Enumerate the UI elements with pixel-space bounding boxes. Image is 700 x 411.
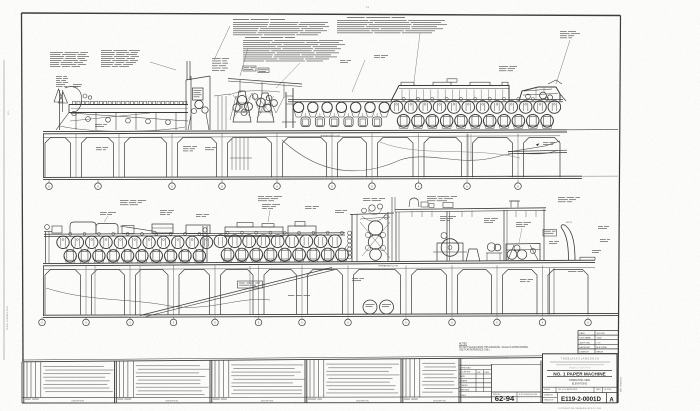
svg-text:APPROVED: APPROVED — [460, 366, 471, 369]
svg-text:NETWORK: NETWORK — [580, 347, 591, 349]
svg-text:DATE: DATE — [580, 332, 586, 335]
svg-text:H A M I L T O N O H I O: H A M I L T O N O H I O — [569, 367, 591, 370]
svg-text:T-605: T-605 — [597, 338, 603, 340]
svg-text:DRAWN BY: DRAWN BY — [544, 393, 554, 396]
svg-text:WIRE: WIRE — [73, 87, 79, 89]
svg-text:10-12-66: 10-12-66 — [604, 389, 611, 391]
svg-text:DESCRIPTION: DESCRIPTION — [72, 400, 85, 402]
svg-text:NO. 1 PAPER MACHINE: NO. 1 PAPER MACHINE — [553, 372, 606, 377]
svg-text:USE FOR REFERENCE ONLY.: USE FOR REFERENCE ONLY. — [459, 350, 491, 352]
svg-text:TRACED: TRACED — [460, 384, 468, 387]
svg-text:DATE: DATE — [460, 375, 466, 378]
svg-text:ELEVATIONS: ELEVATIONS — [572, 382, 588, 385]
svg-text:1/8" = 1'-0" APPROVED: 1/8" = 1'-0" APPROVED — [558, 388, 578, 391]
svg-text:AUTH ORD: AUTH ORD — [580, 341, 591, 344]
svg-text:SCALE: SCALE — [460, 394, 467, 397]
svg-text:ACCEPTED: ACCEPTED — [460, 371, 471, 374]
svg-text:DO NOT SCALE FROM THIS DRAWING: DO NOT SCALE FROM THIS DRAWING. SCALE IS… — [459, 346, 529, 349]
svg-text:62-94: 62-94 — [495, 394, 515, 403]
svg-text:DESCRIPTION: DESCRIPTION — [356, 400, 369, 402]
svg-text:SCALE: SCALE — [544, 388, 551, 391]
svg-text:DWG NAME: DWG NAME — [580, 337, 592, 340]
svg-text:COPYRIGHT THE ITEMKA BULLET: COPYRIGHT THE ITEMKA BULLETIN CO 1966 — [558, 407, 602, 410]
svg-text:FILE No 1 PM ELEV 62-94: FILE No 1 PM ELEV 62-94 — [7, 305, 9, 330]
svg-text:CHECKED: CHECKED — [460, 389, 470, 391]
svg-text:DRAWN: DRAWN — [460, 380, 468, 383]
svg-text:DESCRIPTION: DESCRIPTION — [261, 400, 274, 402]
svg-text:BEN W: BEN W — [597, 352, 604, 354]
svg-text:FELTS: FELTS — [566, 222, 572, 224]
svg-text:E 119-2-0001D No 4209: E 119-2-0001D No 4209 — [519, 394, 537, 396]
svg-text:DESCRIPTION: DESCRIPTION — [433, 400, 446, 402]
svg-text:DRWN BY: DRWN BY — [580, 352, 590, 354]
svg-text:MAY 4 PRINTED: MAY 4 PRINTED — [620, 376, 623, 392]
svg-text:10-12-66: 10-12-66 — [597, 333, 606, 335]
svg-text:A: A — [609, 397, 614, 403]
svg-text:DATE: DATE — [596, 388, 601, 391]
svg-text:OPERATING FLOOR: OPERATING FLOOR — [320, 135, 340, 138]
svg-text:T H E B L A C K C L A W S: T H E B L A C K C L A W S O N C O — [561, 358, 599, 361]
svg-text:OPERATING FLOOR: OPERATING FLOOR — [378, 265, 398, 268]
svg-text:M-E 5707A: M-E 5707A — [597, 346, 608, 349]
svg-text:E119-2-0001D: E119-2-0001D — [561, 396, 601, 403]
svg-text:DESCRIPTION: DESCRIPTION — [166, 400, 179, 402]
svg-text:TRACED BY: TRACED BY — [544, 399, 555, 402]
